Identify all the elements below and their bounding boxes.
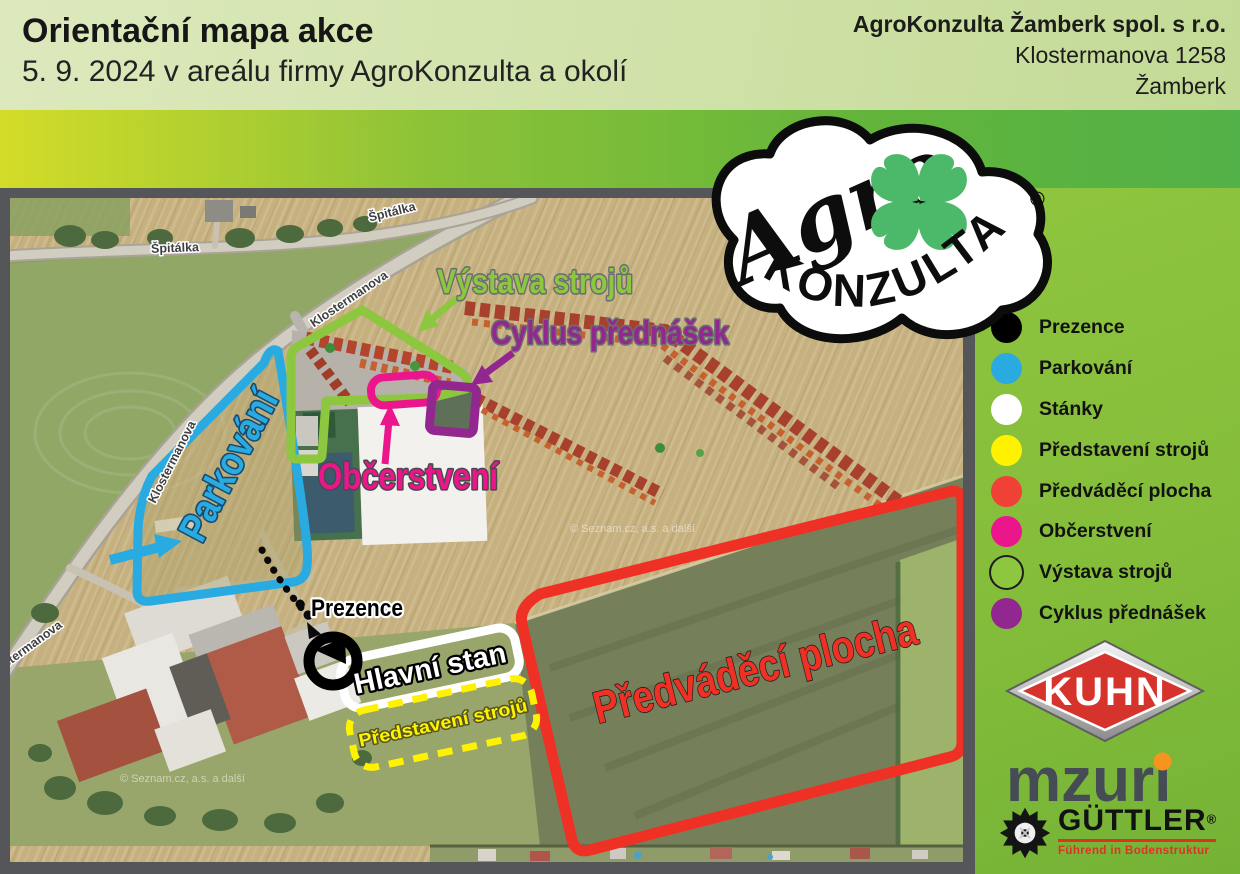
legend-dot (991, 394, 1022, 425)
label-prezence: Prezence (311, 595, 403, 622)
legend-item: Výstava strojů (975, 552, 1240, 593)
legend-item: Stánky (975, 389, 1240, 430)
title-block: Orientační mapa akce 5. 9. 2024 v areálu… (22, 10, 627, 90)
agrokonzulta-reg: ® (1030, 189, 1045, 211)
legend: Prezence Parkování Stánky Představení st… (975, 307, 1240, 634)
street-label-spitalka: Špitálka (151, 239, 200, 256)
guttler-wordmark: GÜTTLER (1058, 804, 1207, 837)
legend-item: Předváděcí plocha (975, 471, 1240, 512)
cyklus-arrow (471, 353, 513, 385)
guttler-reg: ® (1207, 812, 1217, 827)
mzuri-orange-dot (1154, 753, 1172, 771)
street-label-spitalka: Špitálka (367, 198, 418, 224)
legend-dot (991, 516, 1022, 547)
legend-dot (991, 557, 1022, 588)
company-street: Klostermanova 1258 (853, 40, 1226, 71)
legend-dot (991, 435, 1022, 466)
map-attribution: © Seznam.cz, a.s. a další (120, 773, 245, 785)
kuhn-logo: KUHN (1005, 639, 1205, 748)
event-map-poster: Orientační mapa akce 5. 9. 2024 v areálu… (0, 0, 1240, 874)
company-name: AgroKonzulta Žamberk spol. s r.o. (853, 9, 1226, 40)
page-title: Orientační mapa akce (22, 10, 627, 53)
guttler-tagline: Führend in Bodenstruktur (1058, 845, 1216, 857)
agrokonzulta-logo: Agro KONZULTA ® (682, 112, 1067, 352)
legend-item: Parkování (975, 348, 1240, 389)
legend-item: Cyklus přednášek (975, 593, 1240, 634)
vystava-arrow (418, 298, 457, 332)
mzuri-wordmark: mzuri (1006, 752, 1171, 810)
legend-item: Představení strojů (975, 430, 1240, 471)
label-vystava-stroju: Výstava strojů (437, 263, 633, 301)
legend-dot (991, 353, 1022, 384)
guttler-logo: GÜTTLER® Führend in Bodenstruktur (998, 806, 1216, 860)
legend-dot (991, 598, 1022, 629)
page-subtitle: 5. 9. 2024 v areálu firmy AgroKonzulta a… (22, 53, 627, 91)
legend-dot (991, 476, 1022, 507)
guttler-roller-icon (998, 806, 1052, 860)
map-attribution: © Seznam.cz, a.s. a další (570, 523, 695, 535)
guttler-text-block: GÜTTLER® Führend in Bodenstruktur (1058, 806, 1216, 857)
header: Orientační mapa akce 5. 9. 2024 v areálu… (0, 0, 1240, 110)
company-city: Žamberk (853, 71, 1226, 102)
label-obcerstveni: Občerstvení (318, 456, 499, 497)
company-block: AgroKonzulta Žamberk spol. s r.o. Kloste… (853, 9, 1226, 101)
legend-item: Občerstvení (975, 511, 1240, 552)
guttler-rule (1058, 839, 1216, 842)
kuhn-wordmark: KUHN (1043, 670, 1167, 714)
